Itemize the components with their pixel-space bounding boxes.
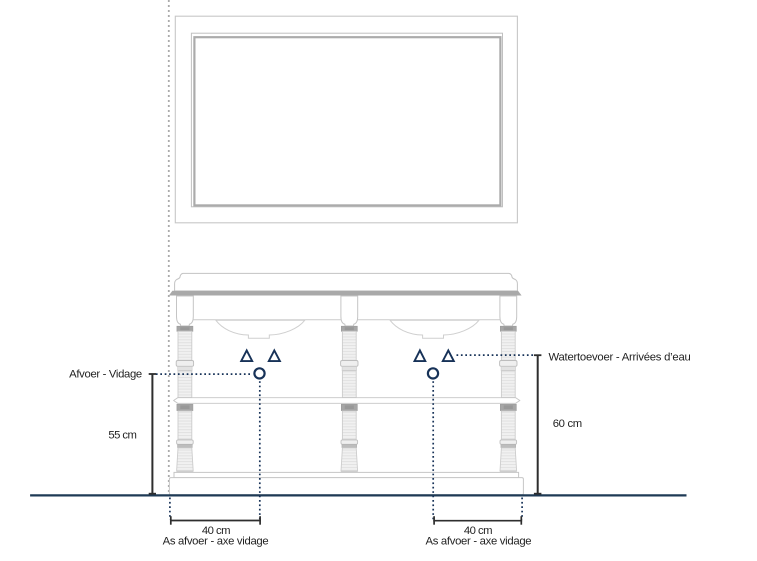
svg-text:Afvoer - Vidage: Afvoer - Vidage <box>69 369 142 381</box>
svg-text:As afvoer - axe vidage: As afvoer - axe vidage <box>163 536 269 548</box>
svg-text:Watertoevoer - Arrivées d’eau: Watertoevoer - Arrivées d’eau <box>549 352 691 364</box>
svg-text:As afvoer - axe vidage: As afvoer - axe vidage <box>425 536 531 548</box>
svg-text:60 cm: 60 cm <box>553 418 582 430</box>
svg-text:55 cm: 55 cm <box>108 430 136 442</box>
